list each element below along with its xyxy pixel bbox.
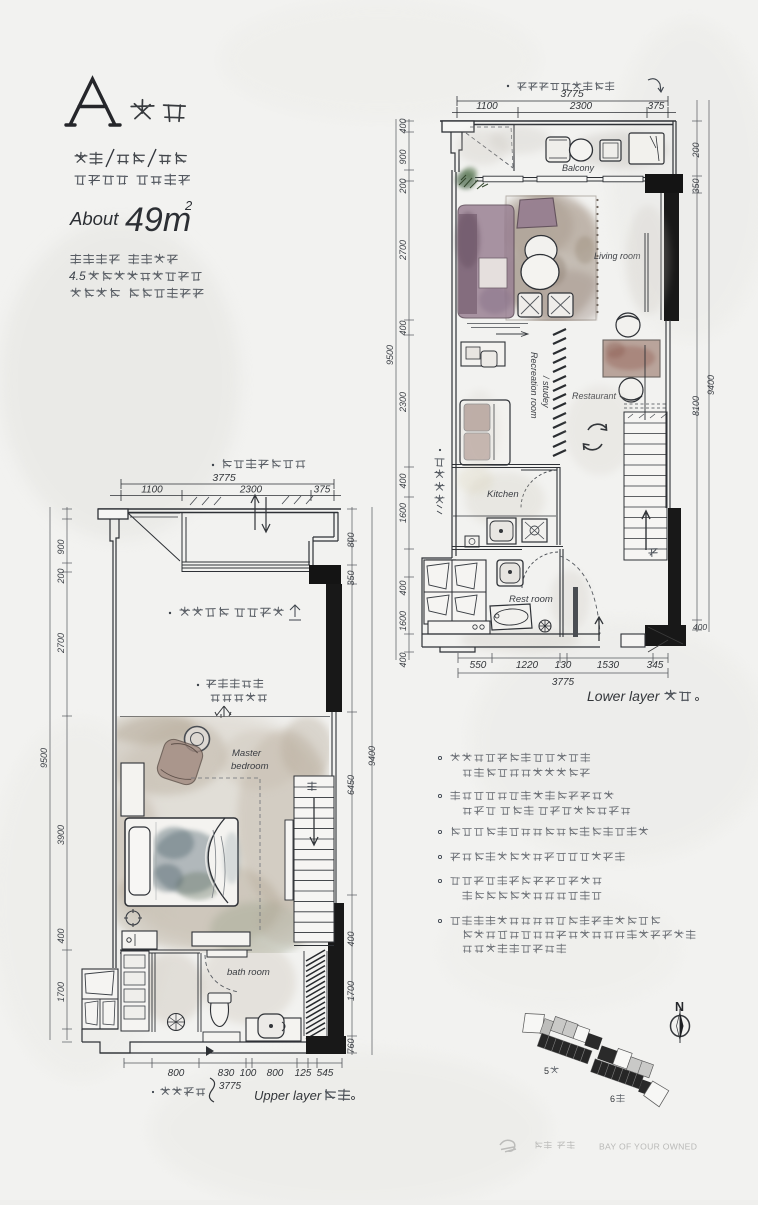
svg-text:800: 800	[346, 532, 356, 547]
svg-text:8100: 8100	[691, 396, 701, 416]
svg-text:3775: 3775	[212, 472, 236, 484]
svg-text:400: 400	[398, 580, 408, 595]
svg-text:900: 900	[398, 149, 408, 164]
svg-text:400: 400	[693, 622, 707, 632]
svg-text:9400: 9400	[706, 375, 716, 395]
svg-text:3775: 3775	[219, 1081, 242, 1092]
svg-text:1530: 1530	[597, 660, 620, 671]
svg-text:2: 2	[184, 198, 193, 213]
svg-text:800: 800	[267, 1068, 284, 1079]
svg-text:400: 400	[398, 652, 408, 667]
svg-text:2300: 2300	[569, 101, 593, 112]
svg-text:1600: 1600	[398, 611, 408, 631]
svg-text:Balcony: Balcony	[562, 163, 595, 173]
svg-text:400: 400	[398, 320, 408, 335]
svg-text:9500: 9500	[39, 748, 49, 768]
svg-text:6450: 6450	[346, 775, 356, 795]
svg-text:345: 345	[647, 660, 664, 671]
svg-text:2300: 2300	[398, 392, 408, 413]
svg-text:6: 6	[610, 1094, 615, 1104]
svg-text:9500: 9500	[385, 345, 395, 365]
svg-text:545: 545	[317, 1068, 334, 1079]
svg-text:Kitchen: Kitchen	[487, 489, 519, 500]
svg-text:400: 400	[398, 473, 408, 488]
svg-text:Upper layer: Upper layer	[254, 1088, 322, 1103]
svg-text:100: 100	[240, 1068, 257, 1079]
svg-text:400: 400	[346, 931, 356, 946]
svg-text:/ studey: / studey	[541, 375, 551, 408]
svg-text:9400: 9400	[367, 746, 377, 766]
svg-text:Lower layer: Lower layer	[587, 688, 661, 704]
svg-text:3900: 3900	[56, 825, 66, 845]
svg-text:3775: 3775	[552, 677, 575, 688]
svg-text:800: 800	[168, 1068, 185, 1079]
svg-text:200: 200	[691, 142, 701, 158]
svg-text:1700: 1700	[346, 981, 356, 1001]
svg-text:1100: 1100	[141, 485, 163, 496]
svg-text:200: 200	[398, 178, 408, 194]
svg-text:1600: 1600	[398, 503, 408, 523]
svg-text:550: 550	[470, 660, 487, 671]
svg-text:bath room: bath room	[227, 967, 270, 978]
svg-text:375: 375	[648, 101, 665, 112]
svg-text:200: 200	[56, 568, 66, 584]
svg-text:Rest room: Rest room	[509, 594, 553, 605]
svg-text:400: 400	[56, 928, 66, 943]
svg-text:350: 350	[691, 178, 701, 193]
svg-text:5: 5	[544, 1066, 549, 1076]
svg-text:2300: 2300	[239, 485, 263, 496]
svg-text:BAY OF YOUR OWNED: BAY OF YOUR OWNED	[599, 1142, 697, 1152]
svg-text:bedroom: bedroom	[231, 761, 269, 772]
svg-text:2700: 2700	[398, 240, 408, 261]
svg-text:900: 900	[56, 539, 66, 554]
svg-text:Master: Master	[232, 748, 262, 759]
svg-text:350: 350	[346, 570, 356, 585]
svg-text:49m: 49m	[125, 201, 191, 239]
svg-text:830: 830	[218, 1068, 235, 1079]
svg-text:2700: 2700	[56, 633, 66, 654]
svg-text:760: 760	[346, 1038, 356, 1053]
svg-text:Recreation room: Recreation room	[529, 352, 539, 419]
svg-text:1220: 1220	[516, 660, 539, 671]
svg-text:1700: 1700	[56, 982, 66, 1002]
svg-text:4.5: 4.5	[69, 269, 86, 283]
svg-text:About: About	[69, 208, 119, 229]
svg-text:400: 400	[398, 118, 408, 133]
svg-text:3775: 3775	[560, 88, 584, 100]
svg-text:130: 130	[555, 660, 572, 671]
svg-text:1100: 1100	[476, 101, 498, 112]
svg-text:125: 125	[295, 1068, 312, 1079]
svg-text:375: 375	[314, 485, 331, 496]
